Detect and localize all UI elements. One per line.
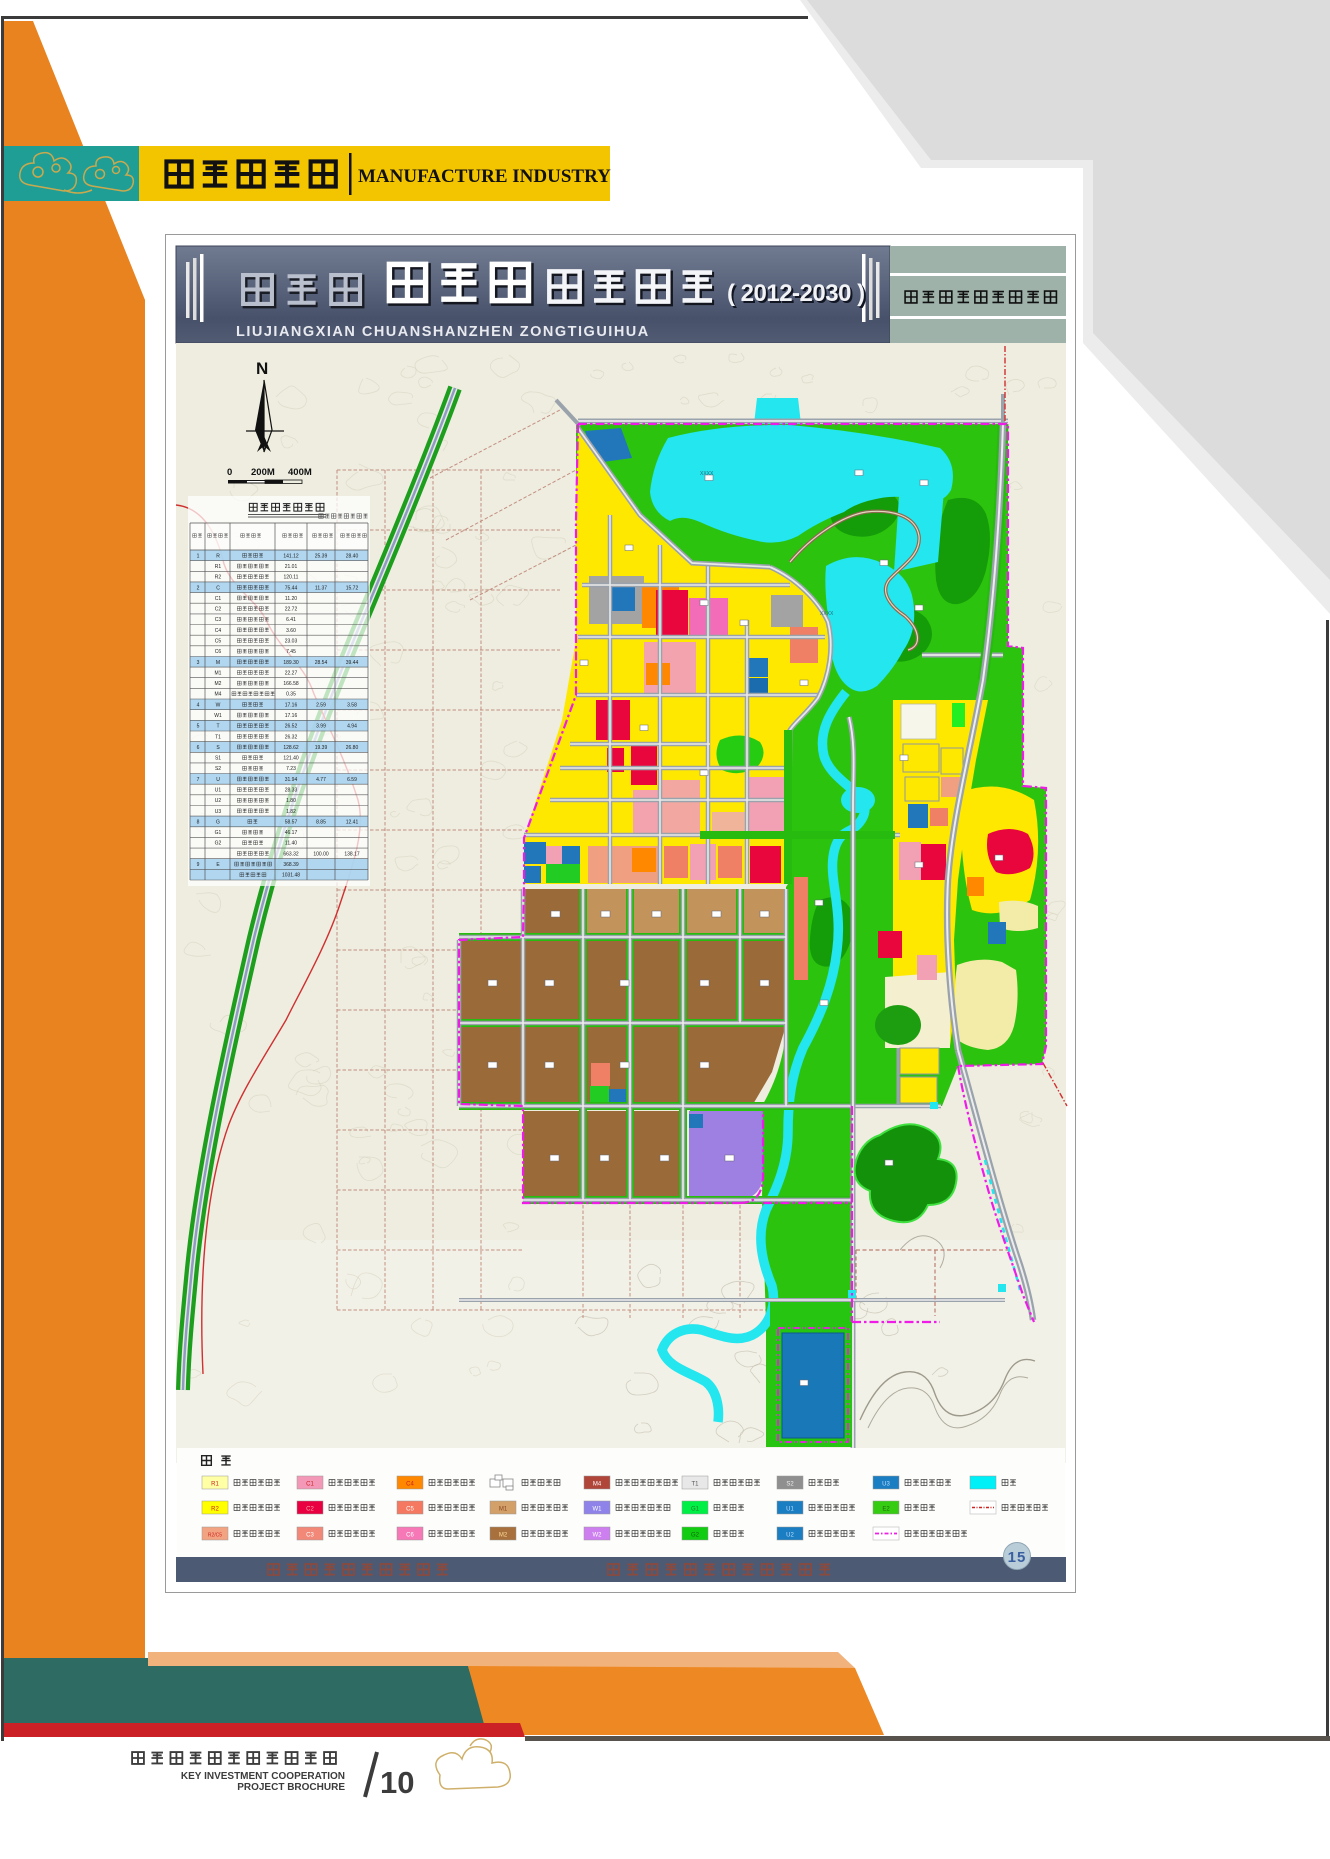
svg-text:8: 8 [197,820,200,826]
svg-text:S1: S1 [215,756,221,762]
svg-text:25.39: 25.39 [315,553,328,559]
svg-text:12.41: 12.41 [346,820,359,826]
svg-text:R2/C5: R2/C5 [208,1533,222,1539]
svg-text:31.94: 31.94 [285,777,298,783]
svg-text:28.40: 28.40 [346,553,359,559]
svg-text:C3: C3 [306,1533,314,1539]
svg-text:G2: G2 [215,841,222,847]
svg-text:LIUJIANGXIAN CHUANSHANZHEN Z: LIUJIANGXIAN CHUANSHANZHEN ZONGTIGUIHUA [236,324,650,340]
svg-text:M2: M2 [499,1533,508,1539]
svg-text:166.58: 166.58 [283,681,299,687]
svg-text:4.77: 4.77 [316,777,326,783]
svg-text:4.94: 4.94 [347,724,357,730]
svg-text:1.80: 1.80 [286,798,296,804]
svg-text:8.85: 8.85 [316,820,326,826]
svg-text:U1: U1 [215,788,222,794]
svg-text:21.01: 21.01 [285,564,298,570]
svg-text:W: W [216,702,221,708]
svg-text:R1: R1 [215,564,222,570]
svg-text:75.44: 75.44 [285,585,298,591]
svg-text:C6: C6 [406,1533,414,1539]
svg-text:23.03: 23.03 [285,639,298,645]
svg-text:KEY INVESTMENT COOPERATION: KEY INVESTMENT COOPERATION [181,1771,345,1782]
svg-text:C2: C2 [215,607,222,613]
svg-text:28.54: 28.54 [315,660,328,666]
svg-text:22.72: 22.72 [285,607,298,613]
svg-text:3.58: 3.58 [347,702,357,708]
svg-text:17.16: 17.16 [285,713,298,719]
svg-text:10: 10 [380,1765,414,1800]
svg-text:120.11: 120.11 [284,575,299,581]
svg-text:138.17: 138.17 [344,851,360,857]
svg-text:26.80: 26.80 [346,745,359,751]
svg-text:C1: C1 [215,596,222,602]
svg-text:M1: M1 [499,1507,508,1513]
svg-text:XXXX: XXXX [700,471,714,477]
svg-text:C4: C4 [406,1482,414,1488]
svg-text:15.72: 15.72 [346,585,359,591]
svg-text:3.99: 3.99 [316,724,326,730]
svg-text:0: 0 [227,467,232,478]
svg-text:U2: U2 [786,1533,794,1539]
svg-text:11.37: 11.37 [315,585,327,591]
svg-text:U: U [216,777,220,783]
svg-text:200M: 200M [251,467,275,478]
svg-text:M: M [216,660,220,666]
svg-text:XXXX: XXXX [820,611,834,617]
svg-text:T: T [216,724,219,730]
svg-text:S2: S2 [215,766,221,772]
svg-text:W1: W1 [593,1507,603,1513]
svg-text:C5: C5 [406,1507,414,1513]
svg-text:M4: M4 [593,1482,602,1488]
svg-text:6.41: 6.41 [286,617,296,623]
svg-text:7.45: 7.45 [286,649,296,655]
svg-text:R: R [216,553,220,559]
svg-text:T1: T1 [691,1482,699,1488]
svg-text:C3: C3 [215,617,222,623]
svg-text:C6: C6 [215,649,222,655]
svg-text:46.17: 46.17 [285,830,298,836]
svg-text:N: N [256,359,268,378]
svg-text:( 2012-2030 ): ( 2012-2030 ) [727,280,865,307]
svg-text:MANUFACTURE INDUSTRY: MANUFACTURE INDUSTRY [358,166,611,187]
svg-text:15: 15 [1008,1549,1027,1566]
svg-text:663.32: 663.32 [283,851,299,857]
svg-text:17.16: 17.16 [285,702,298,708]
svg-text:G1: G1 [215,830,222,836]
svg-text:C1: C1 [306,1482,314,1488]
svg-text:1.82: 1.82 [286,809,296,815]
svg-text:U1: U1 [786,1507,794,1513]
svg-text:28.33: 28.33 [285,788,298,794]
svg-text:39.44: 39.44 [346,660,359,666]
svg-text:PROJECT BROCHURE: PROJECT BROCHURE [237,1782,345,1793]
svg-text:C: C [216,585,220,591]
svg-text:4: 4 [197,702,200,708]
svg-text:141.12: 141.12 [283,553,299,559]
svg-text:3: 3 [197,660,200,666]
svg-text:1031.48: 1031.48 [282,873,300,879]
svg-text:R2: R2 [211,1507,219,1513]
svg-text:2: 2 [197,585,200,591]
svg-text:C5: C5 [215,639,222,645]
svg-text:U3: U3 [882,1482,890,1488]
svg-text:22.27: 22.27 [285,670,298,676]
svg-text:26.52: 26.52 [285,724,298,730]
svg-text:128.62: 128.62 [283,745,299,751]
svg-text:189.30: 189.30 [283,660,299,666]
svg-text:M4: M4 [215,692,222,698]
svg-text:6: 6 [197,745,200,751]
svg-text:G2: G2 [691,1533,700,1539]
svg-text:3.60: 3.60 [286,628,296,634]
svg-text:400M: 400M [288,467,312,478]
svg-text:0.35: 0.35 [286,692,296,698]
svg-text:6.59: 6.59 [347,777,357,783]
svg-text:C4: C4 [215,628,222,634]
svg-text:7: 7 [197,777,200,783]
svg-text:C2: C2 [306,1507,314,1513]
svg-text:G1: G1 [691,1507,700,1513]
svg-text:5: 5 [197,724,200,730]
svg-text:U2: U2 [215,798,222,804]
svg-text:100.00: 100.00 [313,851,329,857]
svg-text:U3: U3 [215,809,222,815]
svg-text:19.39: 19.39 [315,745,328,751]
svg-text:E2: E2 [882,1507,890,1513]
svg-text:368.39: 368.39 [283,862,299,868]
svg-text:26.32: 26.32 [285,734,298,740]
svg-text:121.40: 121.40 [283,756,299,762]
svg-text:M2: M2 [215,681,222,687]
svg-text:1: 1 [197,553,200,559]
svg-text:58.57: 58.57 [285,820,298,826]
svg-text:W1: W1 [214,713,222,719]
svg-text:11.40: 11.40 [285,841,297,847]
svg-text:W2: W2 [593,1533,603,1539]
svg-text:S2: S2 [786,1482,794,1488]
svg-text:R1: R1 [211,1482,219,1488]
svg-text:R2: R2 [215,575,222,581]
svg-text:2.59: 2.59 [316,702,326,708]
svg-text:M1: M1 [215,670,222,676]
svg-text:7.23: 7.23 [286,766,296,772]
svg-text:11.20: 11.20 [285,596,297,602]
svg-text:G: G [216,820,220,826]
svg-text:T1: T1 [215,734,221,740]
svg-text:9: 9 [197,862,200,868]
